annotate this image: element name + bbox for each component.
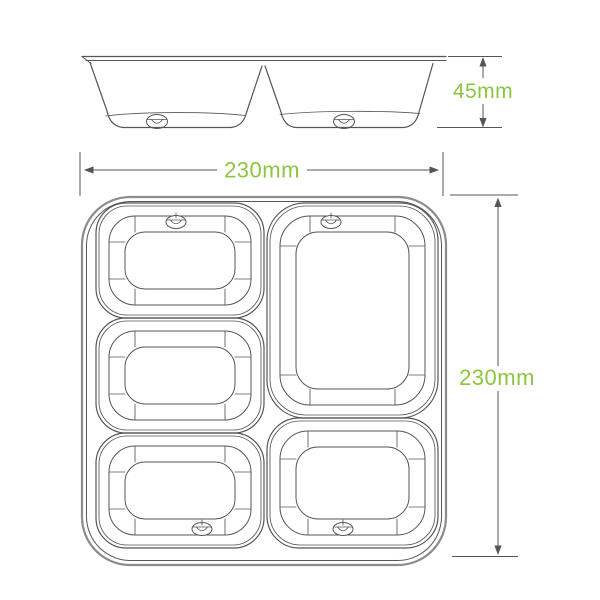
compartment-floor-line: [296, 232, 409, 389]
compartment-outline: [267, 203, 438, 418]
arrow-right-icon: [430, 166, 440, 173]
length-dimension-label: 230mm: [459, 365, 535, 390]
technical-drawing-canvas: 45mm 230mm 230mm: [0, 0, 600, 600]
compartment-floor-line: [296, 447, 409, 519]
compartment-wall-top-line: [109, 216, 251, 305]
compartment-rim-line: [99, 321, 261, 430]
right-compartment-base-line: [280, 111, 420, 114]
arrow-up-icon: [479, 57, 486, 67]
left-compartment-base-line: [106, 113, 245, 116]
compartment-floor-line: [125, 462, 235, 519]
width-dimension: 230mm: [80, 152, 443, 196]
compartment-wall-top-line: [280, 216, 425, 405]
compartment-rim-line: [270, 206, 435, 415]
height-dimension-label: 45mm: [453, 80, 513, 103]
arrow-left-icon: [84, 166, 94, 173]
left-vent-button-icon: [147, 115, 168, 129]
compartment-wall-top-line: [109, 446, 251, 535]
tray-technical-drawing: 45mm 230mm 230mm: [0, 0, 600, 600]
arrow-up-icon: [494, 198, 501, 208]
plan-view: [82, 197, 446, 565]
arrow-down-icon: [494, 546, 501, 556]
compartments-group: [96, 203, 438, 548]
compartment-floor-line: [125, 347, 235, 404]
height-dimension: 45mm: [437, 57, 513, 128]
compartment-floor-line: [125, 232, 235, 289]
compartment-wall-top-line: [109, 331, 251, 420]
compartment-rim-line: [99, 436, 261, 545]
width-dimension-label: 230mm: [224, 158, 300, 183]
right-vent-button-icon: [334, 115, 355, 129]
arrow-down-icon: [479, 118, 486, 128]
right-compartment-outline: [265, 64, 433, 128]
length-dimension: 230mm: [450, 195, 535, 557]
left-compartment-outline: [90, 63, 262, 128]
side-elevation-view: [82, 57, 446, 129]
